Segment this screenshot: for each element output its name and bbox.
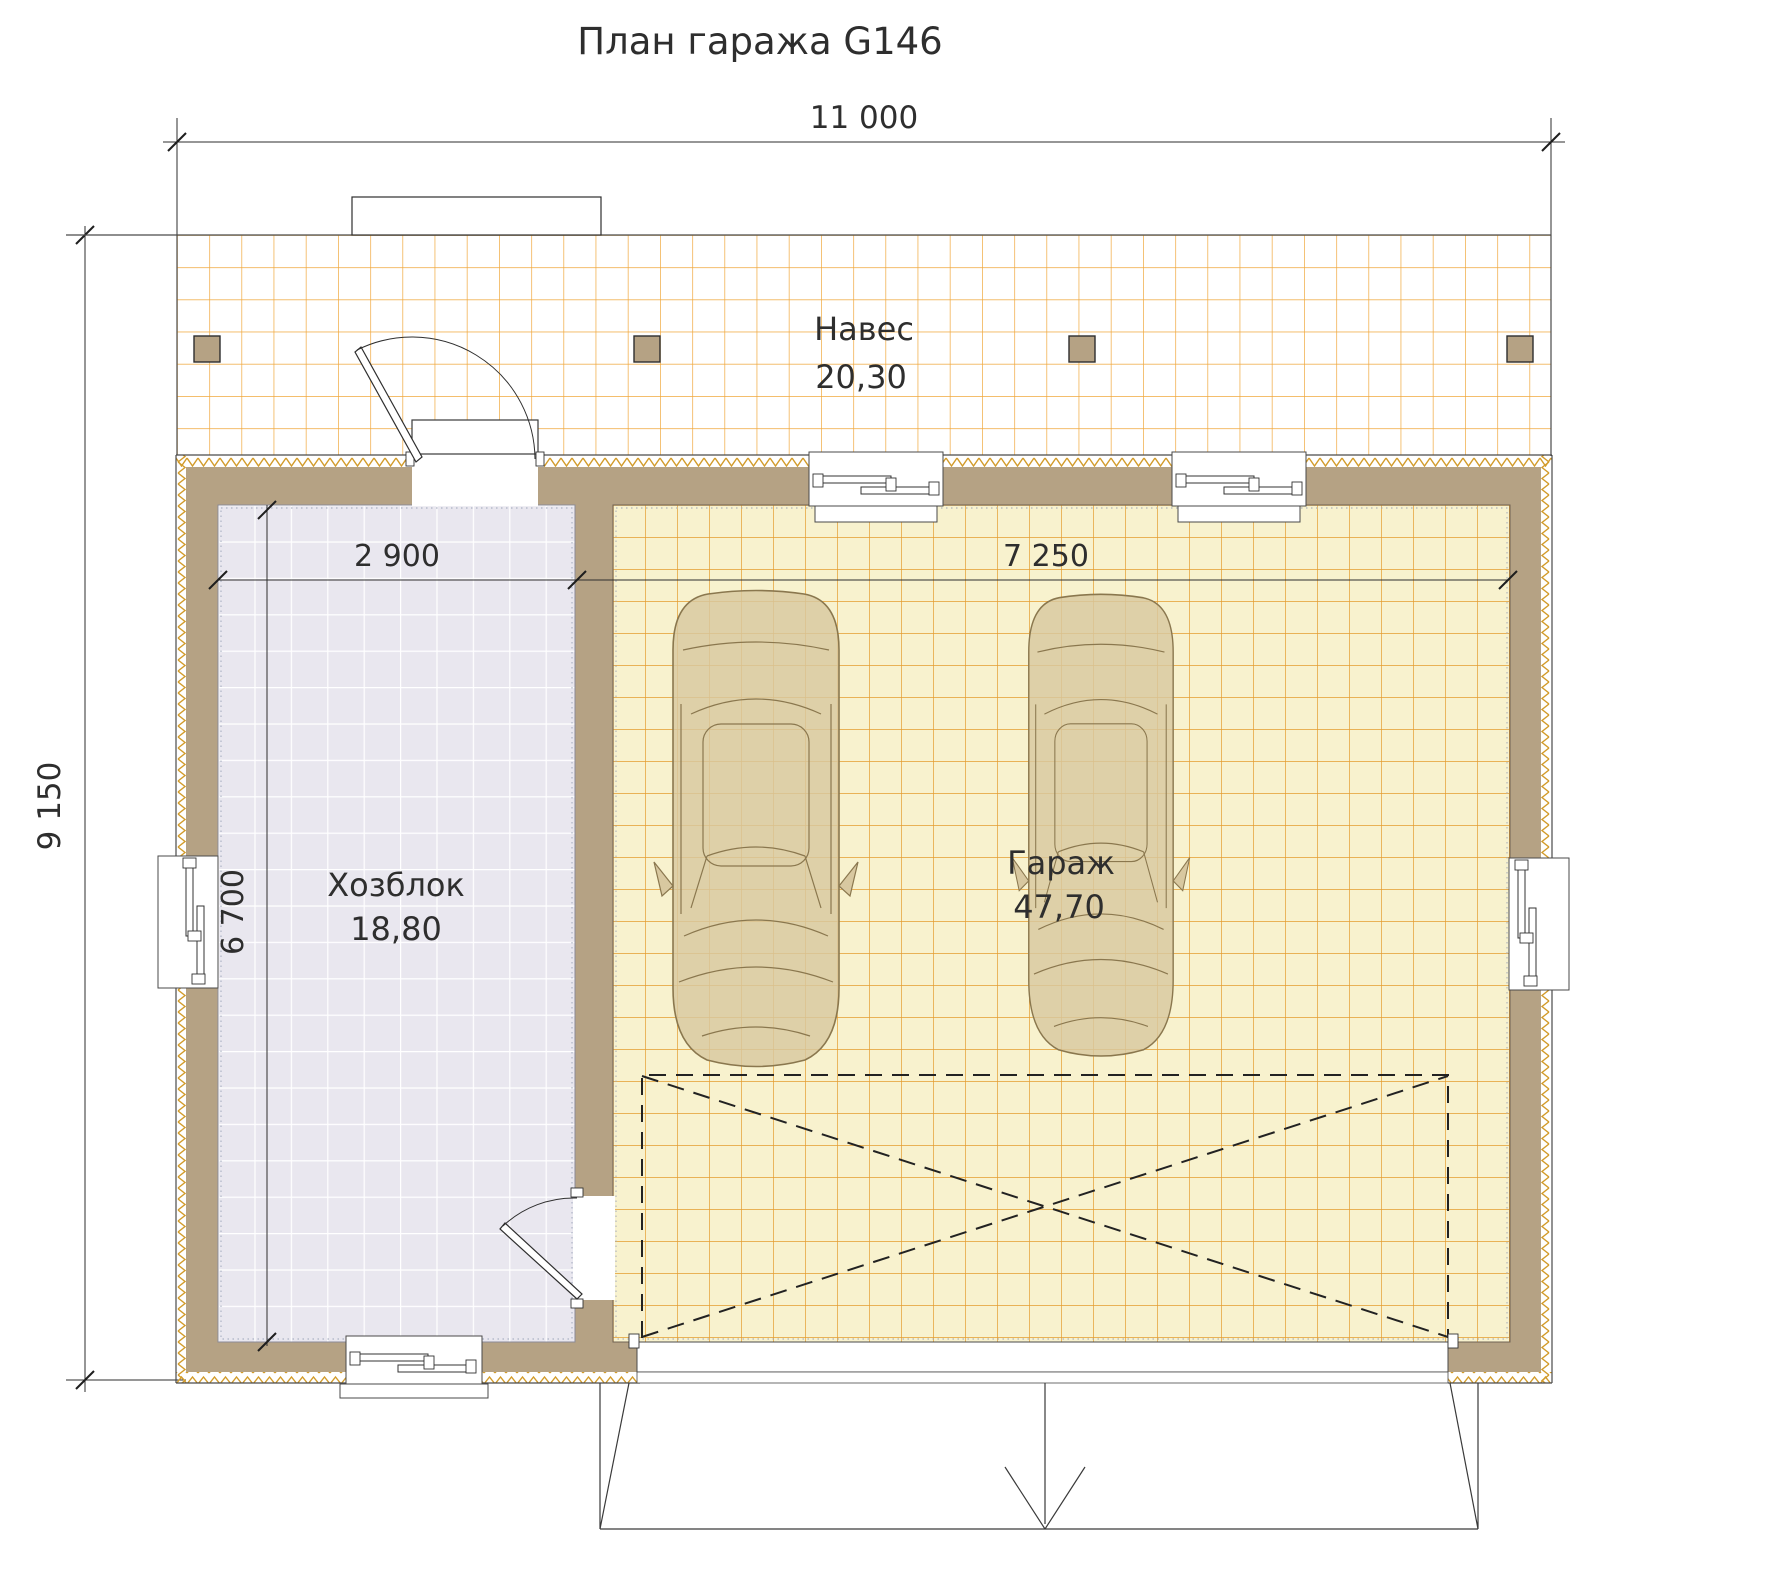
utility-area-label: 18,80: [350, 910, 442, 948]
driveway-ramp: [600, 1383, 1478, 1529]
garage-room: Гараж 47,70: [613, 505, 1510, 1342]
dim-overall-width-label: 11 000: [810, 100, 918, 136]
canopy-post: [194, 336, 220, 362]
utility-name-label: Хозблок: [327, 866, 465, 904]
dim-garage-width-label: 7 250: [1003, 539, 1089, 574]
car-top-view: [1012, 594, 1189, 1056]
canopy-post: [1507, 336, 1533, 362]
garage-name-label: Гараж: [1007, 844, 1115, 882]
car-top-view: [654, 591, 858, 1067]
canopy-post: [634, 336, 660, 362]
garage-area-label: 47,70: [1013, 888, 1105, 926]
window-utility-south: [340, 1336, 488, 1398]
canopy-post: [1069, 336, 1095, 362]
dim-utility-width-label: 2 900: [354, 539, 440, 574]
garage-floor-plan-drawing: План гаража G146 11 000 9 150 Навес 20,3…: [0, 0, 1781, 1589]
canopy-area: Навес 20,30: [66, 197, 1551, 455]
window-utility-west: [158, 856, 218, 988]
drive-direction-arrow: [1005, 1383, 1085, 1529]
canopy-stoop: [352, 197, 601, 235]
canopy-name-label: Навес: [814, 310, 914, 348]
page-title: План гаража G146: [577, 20, 942, 63]
canopy-area-label: 20,30: [815, 358, 907, 396]
dimension-overall-depth: 9 150: [32, 226, 186, 1392]
dim-overall-depth-label: 9 150: [32, 762, 68, 851]
window-garage-east: [1509, 858, 1569, 990]
window-garage-north-2: [1172, 452, 1306, 522]
window-garage-north-1: [809, 452, 943, 522]
dim-utility-depth-label: 6 700: [216, 869, 251, 955]
floor-plan-sheet: План гаража G146 11 000 9 150 Навес 20,3…: [0, 0, 1781, 1589]
utility-room: Хозблок 18,80 6 700: [216, 501, 575, 1351]
